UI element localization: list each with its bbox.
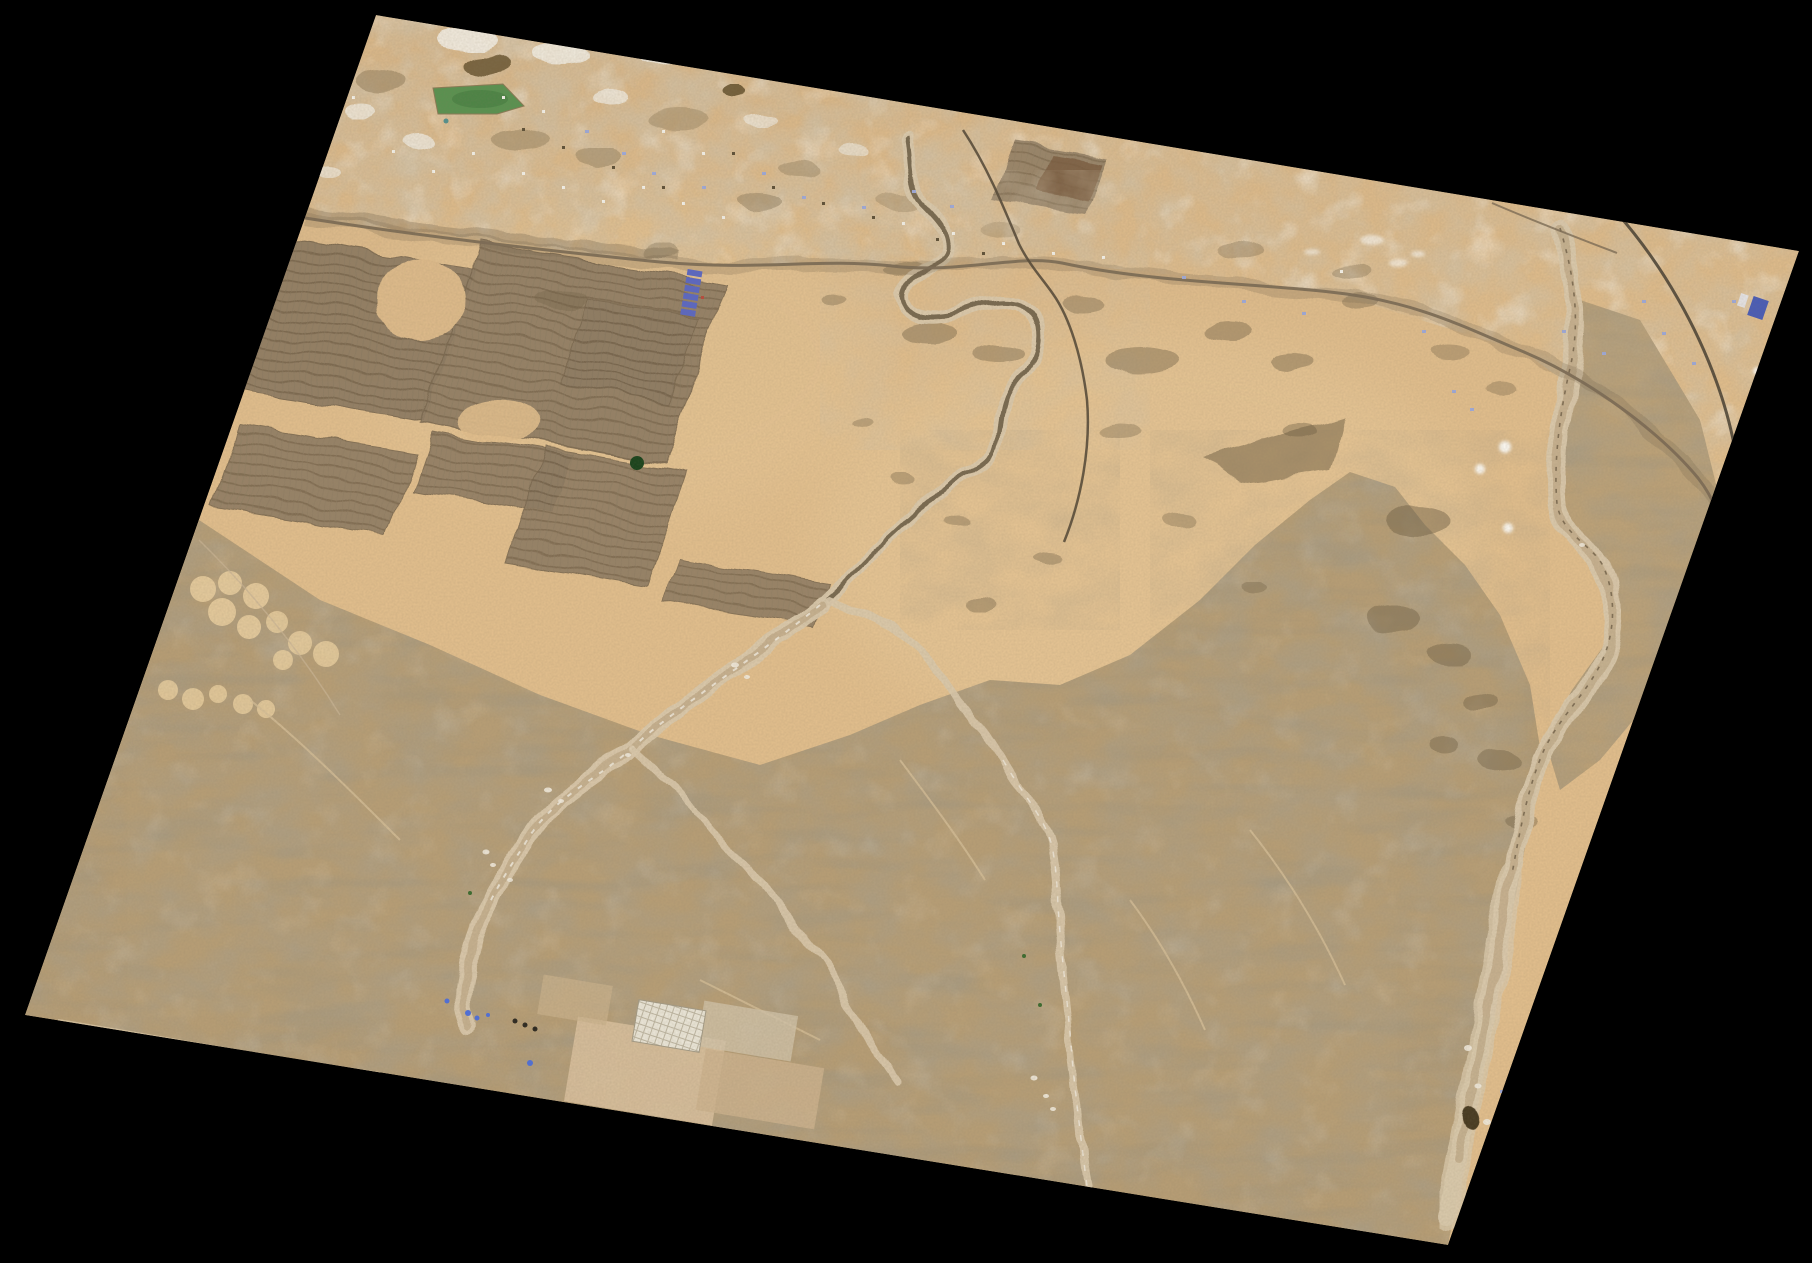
satellite-screenshot [0,0,1812,1263]
satellite-scene-svg [0,0,1812,1263]
